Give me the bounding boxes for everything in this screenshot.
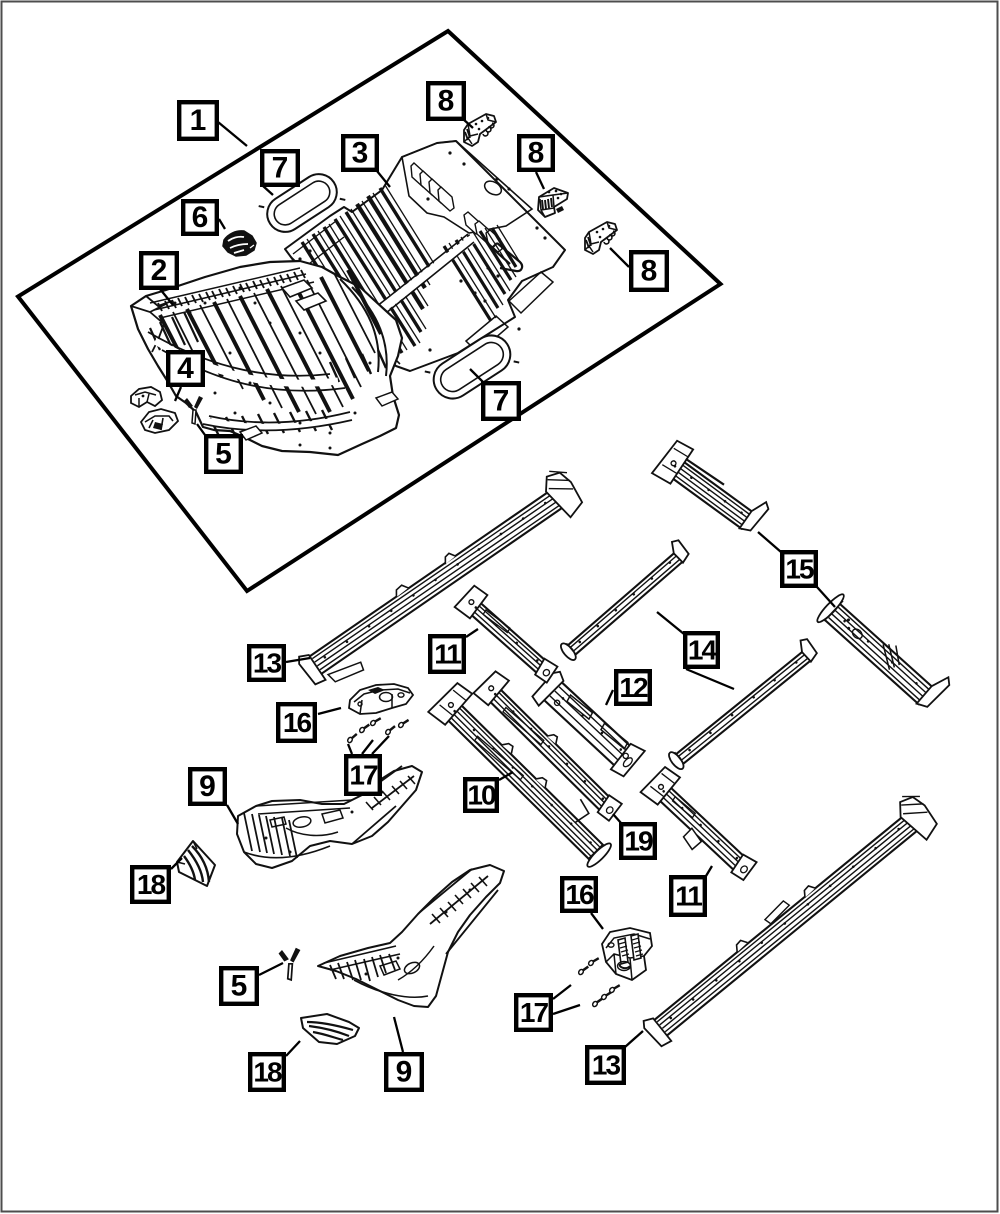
- svg-text:17: 17: [349, 760, 378, 791]
- svg-text:14: 14: [688, 635, 718, 666]
- svg-text:7: 7: [493, 385, 510, 418]
- svg-text:17: 17: [520, 997, 549, 1028]
- svg-text:13: 13: [592, 1050, 621, 1081]
- svg-text:12: 12: [619, 672, 648, 703]
- svg-text:7: 7: [272, 152, 289, 185]
- svg-text:6: 6: [192, 201, 209, 234]
- svg-text:19: 19: [624, 826, 653, 857]
- svg-text:9: 9: [199, 770, 216, 803]
- svg-text:18: 18: [137, 869, 166, 900]
- svg-text:11: 11: [675, 881, 702, 912]
- svg-text:8: 8: [528, 137, 545, 170]
- svg-text:2: 2: [151, 254, 168, 287]
- svg-text:13: 13: [253, 648, 282, 679]
- svg-text:5: 5: [231, 970, 248, 1003]
- svg-text:10: 10: [467, 780, 496, 811]
- svg-text:8: 8: [438, 85, 455, 118]
- svg-text:15: 15: [785, 554, 814, 585]
- svg-text:5: 5: [215, 438, 232, 471]
- svg-text:11: 11: [434, 639, 461, 670]
- svg-text:3: 3: [352, 137, 369, 170]
- svg-text:9: 9: [396, 1056, 413, 1089]
- svg-text:18: 18: [253, 1057, 282, 1088]
- svg-text:4: 4: [177, 352, 194, 385]
- svg-text:16: 16: [283, 707, 312, 738]
- svg-text:1: 1: [190, 104, 207, 137]
- svg-text:16: 16: [565, 879, 594, 910]
- svg-text:8: 8: [641, 255, 658, 288]
